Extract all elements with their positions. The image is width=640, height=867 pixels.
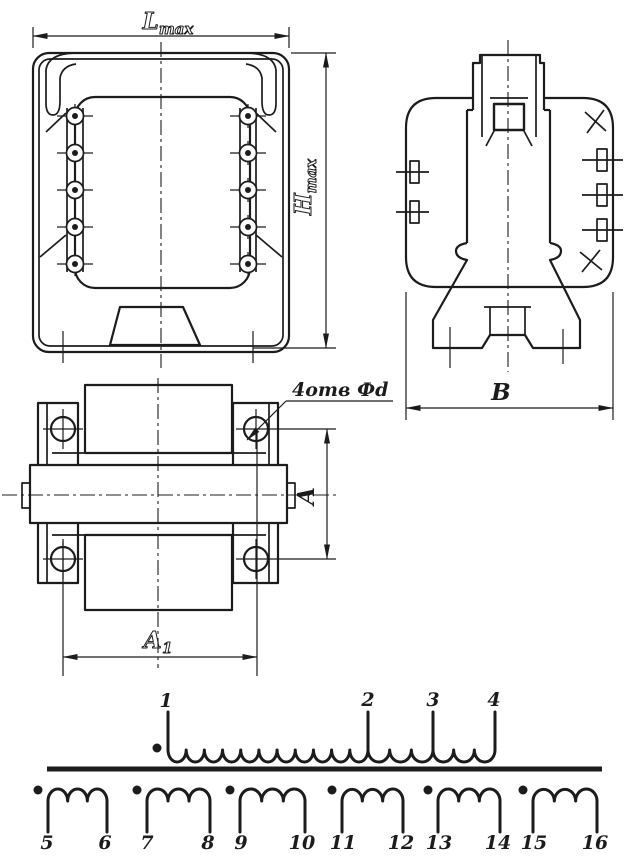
secondary-winding	[240, 789, 305, 832]
secondary-winding	[147, 789, 210, 832]
terminal-lug	[57, 104, 93, 128]
terminal-lug	[57, 252, 93, 276]
terminal-number: 7	[140, 832, 153, 854]
pin	[396, 161, 429, 183]
winding-schematic: 1 2 3 4 5 6 7 8 9 10 11 12 13 14 15 16	[34, 689, 609, 854]
secondary-winding	[342, 789, 403, 832]
terminal-number: 9	[234, 832, 247, 854]
terminal-number: 15	[521, 832, 547, 854]
cover-seam	[40, 235, 66, 257]
terminal-lug	[57, 215, 93, 239]
front-view	[33, 42, 289, 368]
terminal-number: 3	[426, 689, 439, 711]
dim-label-a1: А1	[141, 627, 172, 657]
rivet-cross-icon	[580, 250, 602, 272]
terminal-lug	[57, 178, 93, 202]
cover-seam	[256, 235, 282, 257]
terminal-number: 6	[98, 832, 111, 854]
terminal-lug	[230, 141, 266, 165]
terminal-lug	[230, 252, 266, 276]
terminal-lugs-right	[230, 104, 266, 276]
holes-note-label: 4отв Фd	[292, 379, 388, 401]
polarity-dot	[328, 786, 337, 795]
terminal-number: 2	[360, 689, 374, 711]
polarity-dot	[424, 786, 433, 795]
dim-label-lmax: Lmax	[142, 8, 195, 38]
transformer-drawing-sheet: Lmax Hmax	[0, 0, 640, 867]
cover-curl-left	[46, 53, 76, 115]
bracket-window	[494, 104, 524, 130]
dim-label-hmax: Hmax	[290, 158, 320, 216]
mounting-hole	[236, 539, 276, 579]
secondary-winding	[438, 789, 500, 832]
side-pins-right	[582, 149, 623, 241]
drawing-canvas: Lmax Hmax	[0, 0, 640, 867]
terminal-number: 1	[159, 690, 172, 712]
side-view	[396, 40, 623, 372]
terminal-number: 13	[426, 832, 452, 854]
core-tongue-front	[110, 307, 200, 345]
terminal-number: 4	[487, 689, 500, 711]
dim-label-b: В	[490, 379, 510, 406]
terminal-number: 14	[485, 832, 511, 854]
dim-label-a: А	[293, 487, 320, 508]
polarity-dot	[226, 786, 235, 795]
primary-winding	[168, 712, 495, 762]
bracket-tab	[486, 131, 494, 146]
terminal-number: 5	[40, 832, 53, 854]
terminal-number: 8	[200, 832, 214, 854]
bracket-tab	[524, 131, 532, 146]
terminal-number: 10	[289, 832, 315, 854]
terminal-lug	[230, 104, 266, 128]
mounting-hole	[236, 409, 276, 449]
terminal-lug	[57, 141, 93, 165]
terminal-number: 11	[330, 832, 356, 854]
mounting-feet-outline	[433, 243, 580, 348]
pin	[582, 219, 623, 241]
pin	[396, 201, 429, 223]
terminal-lug	[230, 178, 266, 202]
top-view	[2, 378, 340, 668]
polarity-dot	[34, 786, 43, 795]
terminal-lug	[230, 215, 266, 239]
terminal-number: 16	[582, 832, 608, 854]
rivet-cross-icon	[585, 110, 606, 133]
pin	[582, 149, 623, 171]
coil-body-outline	[406, 98, 613, 287]
polarity-dot	[519, 786, 528, 795]
cover-curl-right	[246, 53, 276, 115]
secondary-winding	[48, 789, 107, 832]
side-pins-left	[396, 161, 429, 223]
bobbin-outline	[75, 97, 250, 288]
dim-hmax: Hmax	[253, 53, 336, 348]
polarity-dot	[133, 786, 142, 795]
terminal-number: 12	[388, 832, 414, 854]
pin	[582, 184, 623, 206]
secondary-winding	[533, 789, 597, 832]
polarity-dot	[153, 744, 162, 753]
